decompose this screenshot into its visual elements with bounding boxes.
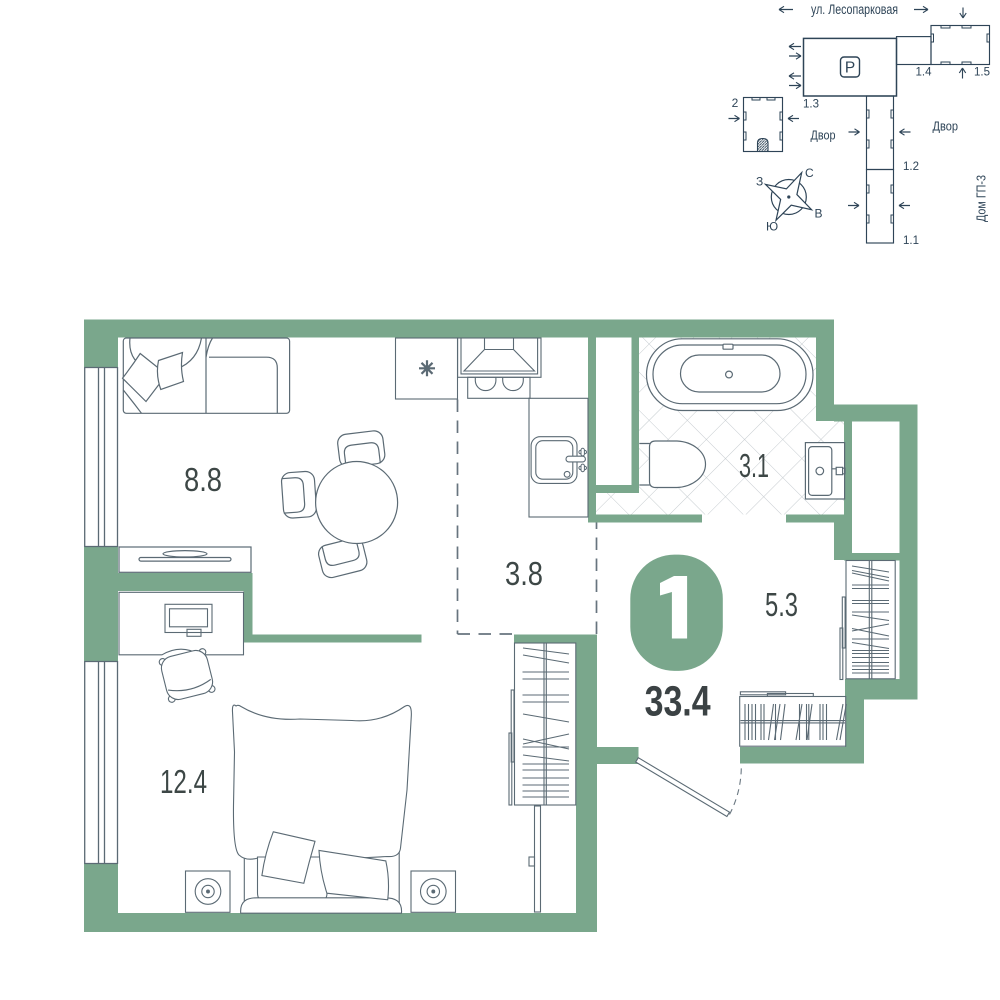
svg-text:Двор: Двор: [811, 128, 836, 143]
svg-text:5.3: 5.3: [765, 586, 798, 623]
svg-text:3.8: 3.8: [505, 555, 543, 592]
svg-text:В: В: [815, 207, 823, 221]
svg-text:1.5: 1.5: [974, 67, 990, 79]
svg-text:Двор: Двор: [933, 119, 959, 134]
svg-text:Ю: Ю: [766, 220, 778, 234]
svg-text:С: С: [805, 166, 814, 180]
svg-text:Р: Р: [845, 60, 855, 77]
svg-text:33.4: 33.4: [645, 678, 711, 726]
svg-text:12.4: 12.4: [160, 763, 207, 800]
svg-text:2: 2: [732, 96, 739, 110]
svg-text:1.4: 1.4: [916, 67, 933, 79]
svg-text:З: З: [756, 175, 763, 189]
svg-text:1.3: 1.3: [803, 99, 819, 111]
svg-text:1.1: 1.1: [903, 235, 919, 247]
svg-text:ул. Лесопарковая: ул. Лесопарковая: [811, 2, 898, 17]
svg-text:1.2: 1.2: [903, 161, 919, 173]
svg-text:Дом ГП-3: Дом ГП-3: [974, 175, 989, 222]
svg-text:3.1: 3.1: [739, 447, 769, 484]
svg-text:8.8: 8.8: [184, 461, 222, 498]
